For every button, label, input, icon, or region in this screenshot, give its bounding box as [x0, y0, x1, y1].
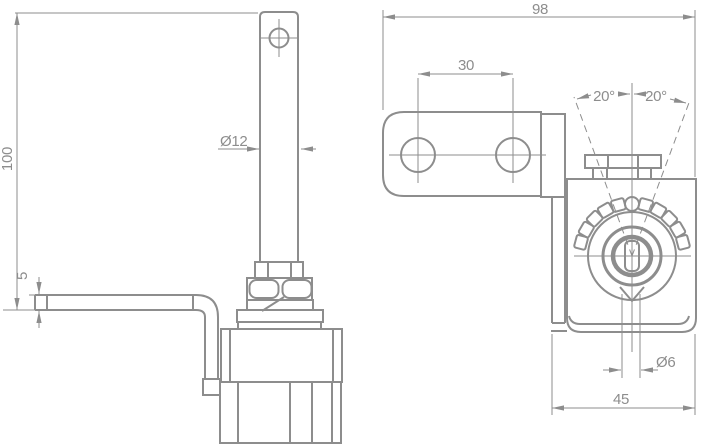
dim-label-body-width: 45 [613, 391, 629, 408]
dim-hole-spacing: 30 [418, 57, 513, 74]
dim-label-overall-width: 98 [532, 1, 548, 18]
flange-lower [238, 322, 321, 329]
technical-drawing: 100 5 Ø12 [0, 0, 704, 446]
drawing-canvas: 100 5 Ø12 [0, 0, 704, 446]
body-upper [221, 329, 342, 382]
front-body-inner-bottom [569, 316, 689, 324]
collar [255, 262, 303, 278]
washer [247, 300, 313, 310]
dim-label-hole-diameter: Ø6 [656, 354, 675, 371]
mount-plate [383, 112, 541, 196]
bracket-plate-outer [35, 295, 218, 379]
bracket-foot [203, 379, 220, 395]
hex-nut-face [283, 280, 312, 298]
flange-upper [237, 310, 323, 322]
angle-line-left [574, 97, 632, 256]
dim-label-plate-thickness: 5 [14, 272, 31, 280]
dim-plate-thickness: 5 [14, 272, 49, 328]
side-view: 100 5 Ø12 [0, 12, 342, 443]
dim-overall-height: 100 [0, 13, 258, 310]
dim-body-width: 45 [552, 334, 695, 415]
dim-label-overall-height: 100 [0, 147, 16, 171]
knurl-tooth [676, 235, 690, 251]
dim-label-angle-right: 20° [645, 88, 667, 105]
dim-rod-diameter: Ø12 [218, 133, 316, 150]
dim-label-hole-spacing: 30 [458, 57, 474, 74]
hex-nut-face [250, 280, 279, 298]
front-view: 98 30 20° 20° Ø6 [383, 1, 696, 415]
dim-label-angle-left: 20° [593, 88, 615, 105]
angle-arrow [577, 95, 591, 99]
dim-label-rod-diameter: Ø12 [220, 133, 247, 150]
top-nut-bar [585, 155, 661, 168]
bracket-strip [551, 197, 567, 331]
bracket-plate-inner [35, 310, 205, 379]
angle-arrow [670, 99, 686, 103]
dim-hole-diameter: Ø6 [603, 294, 675, 378]
